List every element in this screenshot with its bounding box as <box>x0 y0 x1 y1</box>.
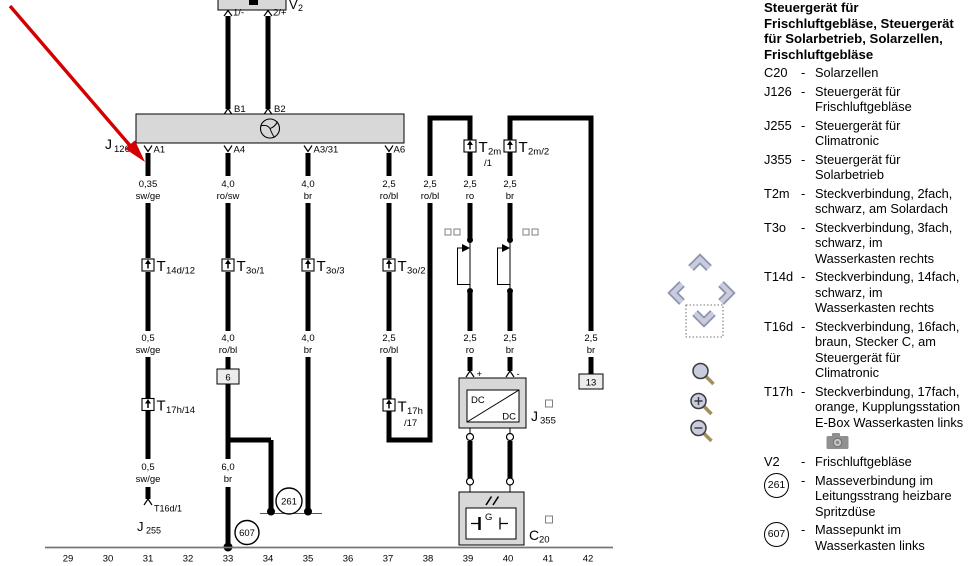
pin-a3-31: A3/31 <box>314 145 339 156</box>
pin-t16d1: T16d/1 <box>154 504 182 514</box>
legend-desc: Steckverbindung, 3fach, schwarz, im Wass… <box>815 220 965 267</box>
svg-text:4,0: 4,0 <box>221 179 234 190</box>
legend-desc: Frischluftgebläse <box>815 454 965 470</box>
legend-item-t2m: T2m - Steckverbindung, 2fach, schwarz, a… <box>764 186 969 217</box>
svg-text:br: br <box>224 474 232 485</box>
t17h17-sub: 17h <box>407 406 423 417</box>
svg-text:40: 40 <box>503 554 514 565</box>
legend-dash: - <box>801 454 815 470</box>
svg-text:41: 41 <box>543 554 554 565</box>
svg-text:ro: ro <box>466 191 474 202</box>
wiring-diagram-viewer: V 2 1/- 2/+ B1 B2 J 126 A1 A4 A3/31 A6 <box>0 0 972 566</box>
legend-desc: Steckverbindung, 2fach, schwarz, am Sola… <box>815 186 965 217</box>
svg-text:2,5: 2,5 <box>584 333 597 344</box>
magnifier-icon[interactable] <box>693 364 714 385</box>
pan-down-button[interactable] <box>686 305 723 337</box>
t3o1-sub: 3o/1 <box>246 266 265 277</box>
legend-item-j126: J126 - Steuergerät für Frischluftgebläse <box>764 84 969 115</box>
track-ref-13: 13 <box>579 374 603 389</box>
svg-text:6: 6 <box>225 373 230 384</box>
wire-labels-row-b: 0,5 sw/ge 4,0 ro/bl 4,0 br 2,5 ro/bl 2,5… <box>136 333 598 356</box>
svg-text:42: 42 <box>583 554 594 565</box>
legend-dash: - <box>801 473 815 520</box>
svg-text:607: 607 <box>239 528 255 539</box>
legend-item-t17h: T17h - Steckverbindung, 17fach, orange, … <box>764 384 969 431</box>
svg-text:31: 31 <box>143 554 154 565</box>
legend-item-261: 261 - Masseverbindung im Leitungsstrang … <box>764 473 969 520</box>
svg-text:br: br <box>304 345 312 356</box>
svg-text:0,35: 0,35 <box>139 179 158 190</box>
dc-top: DC <box>471 395 485 406</box>
legend-key: T14d <box>764 269 801 316</box>
legend-desc: Steuergerät für Solarbetrieb <box>815 152 965 183</box>
t14d12-t: T <box>157 258 166 275</box>
legend-key: J126 <box>764 84 801 115</box>
wire-j355-c20 <box>467 428 514 492</box>
red-pointer-arrow <box>10 6 145 162</box>
svg-text:39: 39 <box>463 554 474 565</box>
legend-item-j355: J355 - Steuergerät für Solarbetrieb <box>764 152 969 183</box>
legend-desc: Steckverbindung, 16fach, braun, Stecker … <box>815 319 965 381</box>
legend-desc: Steckverbindung, 14fach, schwarz, im Was… <box>815 269 965 316</box>
pan-left-button[interactable] <box>673 284 682 302</box>
legend-title: Steuergerät für Frischluftgebläse, Steue… <box>764 0 969 62</box>
svg-text:36: 36 <box>343 554 354 565</box>
j255-connection: T16d/1 J 255 <box>137 504 182 536</box>
legend-key: T2m <box>764 186 801 217</box>
t3o3-t: T <box>317 258 326 275</box>
legend-dash: - <box>801 522 815 553</box>
legend-key: J255 <box>764 118 801 149</box>
svg-text:ro/bl: ro/bl <box>219 345 237 356</box>
legend-dash: - <box>801 186 815 217</box>
zoom-out-icon[interactable] <box>691 421 712 442</box>
component-j355-box: + - DC DC J 355 <box>459 369 556 428</box>
svg-text:2,5: 2,5 <box>382 179 395 190</box>
legend-item-t14d: T14d - Steckverbindung, 14fach, schwarz,… <box>764 269 969 316</box>
legend-desc: Steckverbindung, 17fach, orange, Kupplun… <box>815 384 965 431</box>
t14d12-sub: 14d/12 <box>166 266 195 277</box>
svg-text:37: 37 <box>383 554 394 565</box>
svg-text:br: br <box>506 345 514 356</box>
legend-item-v2: V2 - Frischluftgebläse <box>764 454 969 470</box>
legend-dash: - <box>801 319 815 381</box>
zoom-in-icon[interactable] <box>691 394 712 415</box>
legend-key-circled: 261 <box>764 473 801 520</box>
pan-right-button[interactable] <box>721 284 730 302</box>
legend-key: T3o <box>764 220 801 267</box>
svg-text:ro/bl: ro/bl <box>421 191 439 202</box>
generator-label: G <box>485 512 492 523</box>
svg-text:ro: ro <box>466 345 474 356</box>
pan-up-button[interactable] <box>691 259 709 268</box>
svg-text:0,5: 0,5 <box>141 333 154 344</box>
ground-261-badge: 261 <box>764 473 789 498</box>
legend-item-t16d: T16d - Steckverbindung, 16fach, braun, S… <box>764 319 969 381</box>
svg-text:13: 13 <box>586 378 597 389</box>
c20-label-letter: C <box>529 527 539 543</box>
legend-desc: Masseverbindung im Leitungsstrang heizba… <box>815 473 965 520</box>
j255-label-letter: J <box>137 519 144 534</box>
svg-text:29: 29 <box>63 554 74 565</box>
wires <box>144 118 591 545</box>
legend-dash: - <box>801 152 815 183</box>
svg-text:2,5: 2,5 <box>463 179 476 190</box>
t2m1-sub2: /1 <box>484 158 492 169</box>
nav-controls <box>660 246 746 442</box>
legend-key: J355 <box>764 152 801 183</box>
legend-key: T17h <box>764 384 801 431</box>
legend-panel: Steuergerät für Frischluftgebläse, Steue… <box>764 0 969 556</box>
pin-b2: B2 <box>274 104 286 115</box>
svg-text:30: 30 <box>103 554 114 565</box>
t3o3-sub: 3o/3 <box>326 266 345 277</box>
wire-labels-row-a: 0,35 sw/ge 4,0 ro/sw 4,0 br 2,5 ro/bl 2,… <box>136 179 517 202</box>
pin-a6: A6 <box>394 145 406 156</box>
v2-label-number: 2 <box>298 3 303 13</box>
legend-key: C20 <box>764 65 801 81</box>
inline-connector-left <box>445 229 473 294</box>
track-ref-6: 6 <box>217 369 239 384</box>
svg-text:6,0: 6,0 <box>221 462 234 473</box>
pin-v2-1: 1/- <box>233 8 244 19</box>
svg-text:br: br <box>506 191 514 202</box>
legend-item-j255: J255 - Steuergerät für Climatronic <box>764 118 969 149</box>
t17h17-t: T <box>398 399 407 416</box>
pin-b1: B1 <box>234 104 246 115</box>
svg-text:ro/sw: ro/sw <box>217 191 240 202</box>
svg-text:0,5: 0,5 <box>141 462 154 473</box>
j355-label-letter: J <box>531 408 538 424</box>
wire-v2-to-j126: 1/- 2/+ B1 B2 <box>224 8 287 116</box>
legend-desc: Steuergerät für Frischluftgebläse <box>815 84 965 115</box>
wire-labels-row-c: 0,5 sw/ge 6,0 br <box>136 462 235 485</box>
svg-text:38: 38 <box>423 554 434 565</box>
pin-v2-2: 2/+ <box>273 8 287 19</box>
ground-607-badge: 607 <box>764 522 789 547</box>
svg-text:sw/ge: sw/ge <box>136 474 161 485</box>
svg-text:2,5: 2,5 <box>503 333 516 344</box>
svg-text:2,5: 2,5 <box>423 179 436 190</box>
svg-text:ro/bl: ro/bl <box>380 345 398 356</box>
t17h17-sub2: /17 <box>404 418 417 429</box>
t2m1-sub: 2m <box>488 147 501 158</box>
svg-text:br: br <box>587 345 595 356</box>
t3o1-t: T <box>237 258 246 275</box>
legend-desc: Steuergerät für Climatronic <box>815 118 965 149</box>
svg-text:sw/ge: sw/ge <box>136 345 161 356</box>
j255-label-number: 255 <box>146 526 161 536</box>
svg-text:2,5: 2,5 <box>503 179 516 190</box>
t2m1-t: T <box>479 139 488 156</box>
legend-key: V2 <box>764 454 801 470</box>
svg-text:2,5: 2,5 <box>463 333 476 344</box>
svg-text:4,0: 4,0 <box>301 179 314 190</box>
svg-text:sw/ge: sw/ge <box>136 191 161 202</box>
legend-dash: - <box>801 84 815 115</box>
svg-text:33: 33 <box>223 554 234 565</box>
pin-a4: A4 <box>234 145 246 156</box>
legend-item-c20: C20 - Solarzellen <box>764 65 969 81</box>
svg-text:261: 261 <box>281 497 297 508</box>
legend-dash: - <box>801 118 815 149</box>
j126-label-letter: J <box>105 136 112 152</box>
t3o2-t: T <box>398 258 407 275</box>
legend-dash: - <box>801 269 815 316</box>
wiring-diagram: V 2 1/- 2/+ B1 B2 J 126 A1 A4 A3/31 A6 <box>0 0 660 566</box>
legend-key: T16d <box>764 319 801 381</box>
j355-label-number: 355 <box>540 416 556 427</box>
svg-text:34: 34 <box>263 554 274 565</box>
t17h14-sub: 17h/14 <box>166 405 195 416</box>
c20-label-number: 20 <box>539 535 550 546</box>
pin-a1: A1 <box>154 145 166 156</box>
legend-item-607: 607 - Massepunkt im Wasserkasten links <box>764 522 969 553</box>
t17h14-t: T <box>157 398 166 415</box>
legend-item-t3o: T3o - Steckverbindung, 3fach, schwarz, i… <box>764 220 969 267</box>
svg-text:4,0: 4,0 <box>221 333 234 344</box>
track-rail: 29 30 31 32 33 34 35 36 37 38 39 40 41 4… <box>45 548 613 565</box>
camera-icon[interactable] <box>826 433 969 451</box>
svg-text:ro/bl: ro/bl <box>380 191 398 202</box>
component-v2-box: V 2 <box>218 0 303 13</box>
t3o2-sub: 3o/2 <box>407 266 426 277</box>
legend-dash: - <box>801 220 815 267</box>
svg-text:4,0: 4,0 <box>301 333 314 344</box>
svg-text:35: 35 <box>303 554 314 565</box>
svg-text:32: 32 <box>183 554 194 565</box>
inline-connector-right <box>498 229 539 294</box>
legend-dash: - <box>801 65 815 81</box>
legend-desc: Massepunkt im Wasserkasten links <box>815 522 965 553</box>
t2m2-sub: 2m/2 <box>528 147 549 158</box>
dc-bottom: DC <box>502 412 516 423</box>
t2m2-t: T <box>519 139 528 156</box>
legend-dash: - <box>801 384 815 431</box>
svg-text:br: br <box>304 191 312 202</box>
v2-label-letter: V <box>289 0 298 12</box>
legend-key-circled: 607 <box>764 522 801 553</box>
component-j126-box: J 126 A1 A4 A3/31 A6 <box>105 114 405 156</box>
svg-text:2,5: 2,5 <box>382 333 395 344</box>
component-c20-box: G C 20 <box>459 492 553 546</box>
legend-desc: Solarzellen <box>815 65 965 81</box>
